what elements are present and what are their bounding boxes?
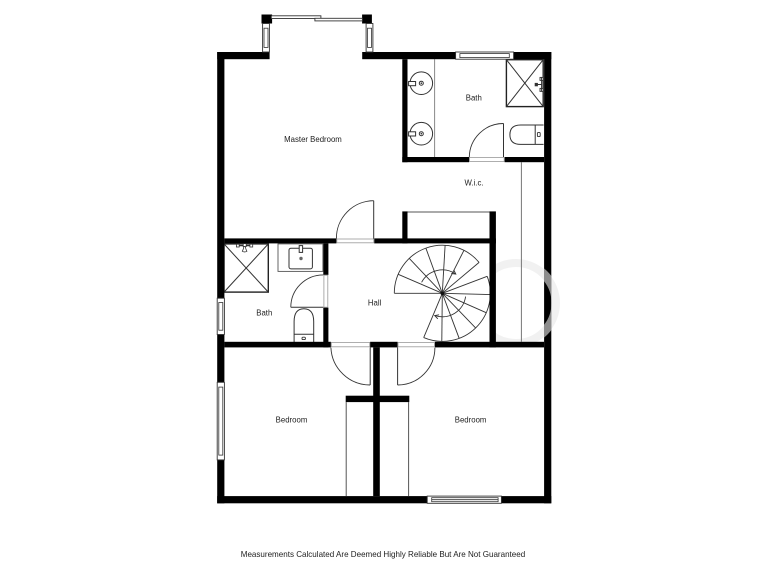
svg-text:Bedroom: Bedroom (276, 416, 308, 425)
svg-text:Bath: Bath (256, 309, 272, 318)
svg-text:Bedroom: Bedroom (455, 416, 487, 425)
svg-text:Master Bedroom: Master Bedroom (284, 135, 342, 144)
svg-text:W.i.c.: W.i.c. (464, 178, 483, 187)
svg-text:Bath: Bath (466, 94, 482, 103)
svg-text:Measurements Calculated Are De: Measurements Calculated Are Deemed Highl… (241, 550, 525, 559)
svg-text:Hall: Hall (368, 298, 382, 307)
